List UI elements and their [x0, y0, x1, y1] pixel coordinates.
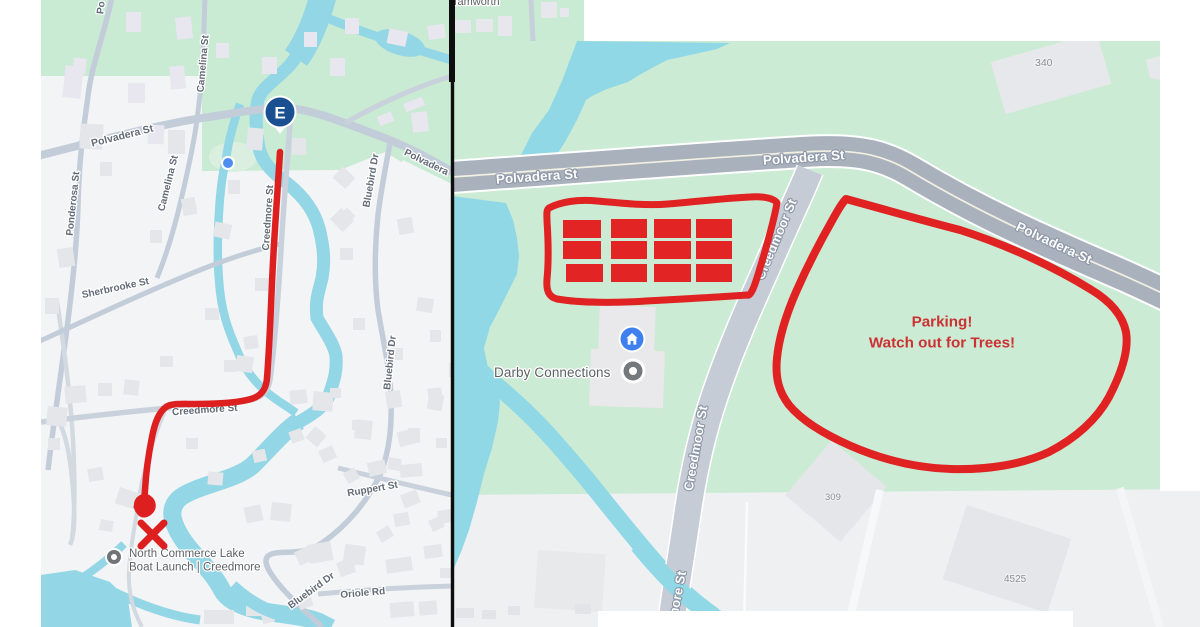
svg-text:E: E: [274, 104, 285, 123]
svg-text:309: 309: [825, 492, 841, 503]
svg-text:Darby Connections: Darby Connections: [494, 365, 611, 380]
svg-text:340: 340: [1035, 57, 1053, 69]
svg-text:4525: 4525: [1004, 574, 1027, 585]
svg-text:Tamworth: Tamworth: [452, 0, 500, 8]
svg-text:Po: Po: [95, 1, 107, 15]
svg-text:Watch out for Trees!: Watch out for Trees!: [869, 335, 1015, 352]
svg-text:North Commerce Lake: North Commerce Lake: [129, 548, 245, 560]
svg-text:Parking!: Parking!: [912, 314, 973, 331]
svg-text:Boat Launch | Creedmore: Boat Launch | Creedmore: [129, 562, 260, 574]
